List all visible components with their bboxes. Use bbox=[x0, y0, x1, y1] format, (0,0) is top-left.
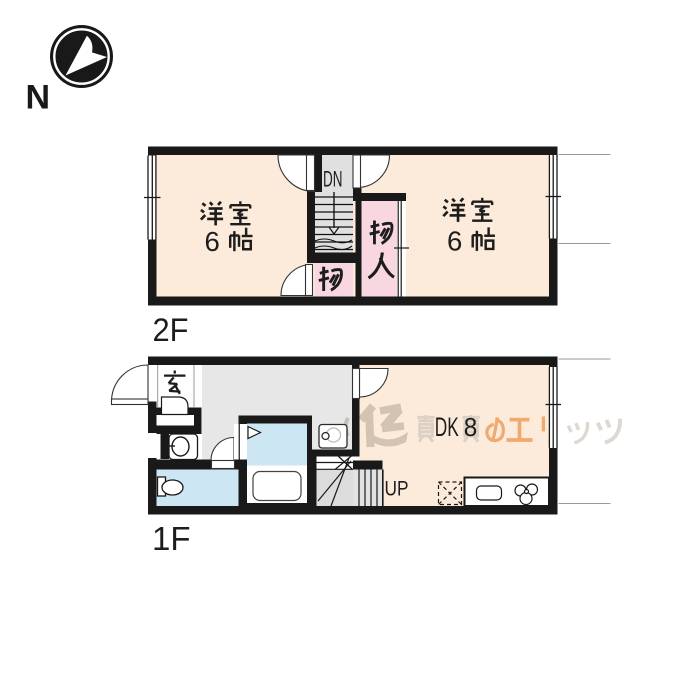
svg-text:N: N bbox=[26, 79, 51, 117]
svg-text:2F: 2F bbox=[153, 312, 189, 348]
svg-text:UP: UP bbox=[385, 478, 409, 501]
svg-text:6: 6 bbox=[205, 226, 220, 257]
svg-text:8: 8 bbox=[464, 412, 478, 442]
svg-text:1F: 1F bbox=[152, 520, 191, 557]
svg-text:DK: DK bbox=[435, 412, 459, 442]
svg-text:6: 6 bbox=[447, 225, 462, 256]
svg-text:DN: DN bbox=[323, 167, 343, 192]
